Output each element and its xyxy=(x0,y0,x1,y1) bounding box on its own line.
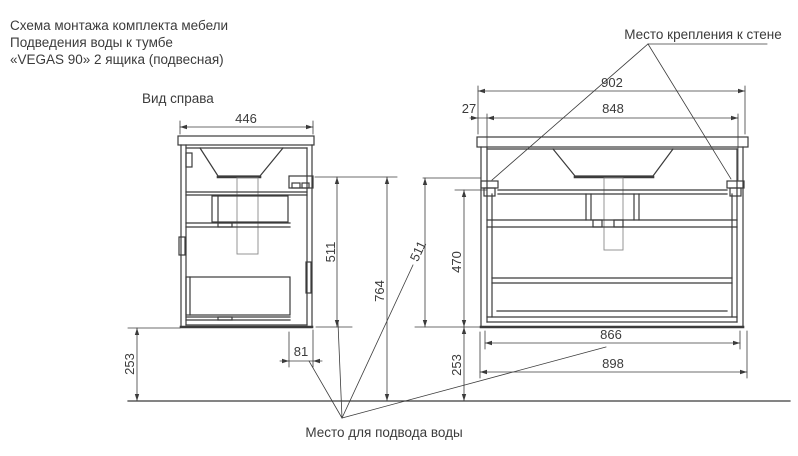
dim-side-depth: 446 xyxy=(180,111,313,134)
dim-front-floor-clearance: 253 xyxy=(449,327,466,401)
wall-bracket-side xyxy=(289,176,313,188)
sink-basin-side xyxy=(200,148,283,177)
dim-front-bottom-inner-width: 866 xyxy=(485,327,740,349)
dim-front-inner-height-value: 470 xyxy=(449,251,464,273)
assembly-diagram: Схема монтажа комплекта мебели Подведени… xyxy=(0,0,798,456)
drain-pipe-front xyxy=(604,178,623,250)
dim-side-water-offset: 81 xyxy=(280,330,322,367)
drain-pipe-side xyxy=(237,178,258,254)
dim-side-cabinet-height: 511 xyxy=(315,177,397,327)
callout-water-supply: Место для подвода воды xyxy=(305,265,606,440)
dim-front-mount-offset-and-span: 27 848 xyxy=(462,101,738,180)
dim-side-wall-mount-height: 764 xyxy=(372,177,389,401)
dim-front-mount-span-value: 848 xyxy=(602,101,624,116)
dim-front-mount-offset-value: 27 xyxy=(462,101,476,116)
sink-basin-front xyxy=(553,149,673,177)
front-view-drawing xyxy=(477,137,748,327)
drawer-1-side xyxy=(212,196,288,222)
wall-bracket-right xyxy=(727,181,744,196)
side-view-drawing xyxy=(178,136,314,327)
dim-side-wall-mount-height-value: 764 xyxy=(372,280,387,302)
dim-side-water-offset-value: 81 xyxy=(294,344,308,359)
drawer-2-side xyxy=(186,277,290,315)
assembly-diagram-page: Схема монтажа комплекта мебели Подведени… xyxy=(0,0,798,456)
title-block: Схема монтажа комплекта мебели Подведени… xyxy=(10,18,228,67)
side-view-label: Вид справа xyxy=(142,91,214,106)
dim-front-bottom-width-value: 898 xyxy=(602,356,624,371)
dim-side-floor-clearance: 253 xyxy=(122,328,180,401)
title-line-2: Подведения воды к тумбе xyxy=(10,35,173,50)
dim-front-cabinet-height: 511 xyxy=(407,178,481,327)
dim-front-bottom-inner-width-value: 866 xyxy=(600,327,622,342)
dim-side-cabinet-height-value: 511 xyxy=(323,242,338,263)
dim-front-cabinet-height-value: 511 xyxy=(407,239,429,264)
dim-side-floor-clearance-value: 253 xyxy=(122,353,137,375)
wall-mount-label: Место крепления к стене xyxy=(624,27,782,42)
dim-front-floor-clearance-value: 253 xyxy=(449,354,464,376)
dim-side-depth-value: 446 xyxy=(235,111,257,126)
water-supply-label: Место для подвода воды xyxy=(305,425,462,440)
title-line-3: «VEGAS 90» 2 ящика (подвесная) xyxy=(10,52,224,67)
title-line-1: Схема монтажа комплекта мебели xyxy=(10,18,228,33)
wall-bracket-left xyxy=(481,181,498,196)
